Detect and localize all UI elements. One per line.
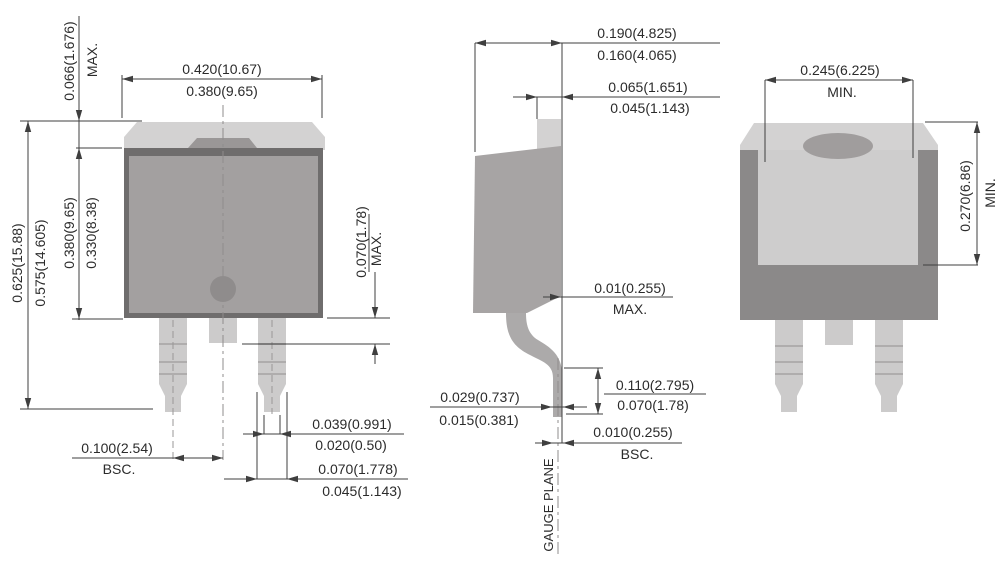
dim-front-center-lead-label: 0.070(1.78) bbox=[353, 206, 369, 278]
arrowhead bbox=[542, 440, 553, 446]
dim-side-lead-thickness-max-label: 0.029(0.737) bbox=[440, 389, 519, 405]
side-view: 0.190(4.825) 0.160(4.065) 0.065(1.651) 0… bbox=[430, 25, 720, 557]
arrowhead bbox=[372, 307, 378, 318]
dim-front-center-lead-qualifier: MAX. bbox=[368, 232, 384, 266]
arrowhead bbox=[563, 404, 574, 410]
arrowhead bbox=[246, 476, 257, 482]
arrowhead bbox=[173, 455, 184, 461]
back-lead-left bbox=[775, 320, 803, 412]
back-lead-center-stub bbox=[825, 320, 853, 345]
arrowhead bbox=[974, 122, 980, 133]
dim-side-lead-height-min-label: 0.070(1.78) bbox=[617, 397, 689, 413]
back-lead-right-tip bbox=[881, 396, 897, 412]
dim-front-tip-width-max-label: 0.039(0.991) bbox=[312, 416, 391, 432]
arrowhead bbox=[551, 40, 562, 46]
dim-side-lead-thickness-min-label: 0.015(0.381) bbox=[439, 412, 518, 428]
back-lead-left-taper bbox=[775, 384, 803, 396]
arrowhead bbox=[541, 404, 552, 410]
dim-side-tab-thickness-max-label: 0.065(1.651) bbox=[608, 79, 687, 95]
dim-side-tab-thickness-min-label: 0.045(1.143) bbox=[610, 100, 689, 116]
back-exposed-pad bbox=[758, 150, 918, 265]
dim-side-gauge-offset-qualifier: BSC. bbox=[621, 446, 654, 462]
dim-back-pad-width-label: 0.245(6.225) bbox=[800, 62, 879, 78]
dim-front-lead-width-max-label: 0.070(1.778) bbox=[318, 461, 397, 477]
dim-front-pitch-label: 0.100(2.54) bbox=[81, 440, 153, 456]
dim-side-body-setback-qualifier: MAX. bbox=[613, 301, 647, 317]
package-outline-drawing: 0.420(10.67) 0.380(9.65) 0.066(1.676) MA… bbox=[0, 0, 1000, 568]
arrowhead bbox=[25, 398, 31, 409]
back-lead-right bbox=[875, 320, 903, 412]
dim-back-pad-height-qualifier: MIN. bbox=[982, 178, 998, 208]
dim-side-depth-min-label: 0.160(4.065) bbox=[597, 47, 676, 63]
dim-front-tip-width-min-label: 0.020(0.50) bbox=[315, 437, 387, 453]
dim-side-gauge-offset-label: 0.010(0.255) bbox=[593, 424, 672, 440]
side-body bbox=[473, 146, 561, 313]
arrowhead bbox=[76, 148, 82, 159]
dim-front-tab-height-label: 0.066(1.676) bbox=[61, 21, 77, 100]
dim-front-total-height-max-label: 0.625(15.88) bbox=[9, 223, 25, 302]
arrowhead bbox=[25, 121, 31, 132]
arrowhead bbox=[526, 94, 537, 100]
arrowhead bbox=[974, 254, 980, 265]
arrowhead bbox=[595, 368, 601, 379]
dim-front-body-height-max-label: 0.380(9.65) bbox=[61, 197, 77, 269]
dim-front-tab-height-qualifier: MAX. bbox=[84, 43, 100, 77]
dim-side-depth-max-label: 0.190(4.825) bbox=[597, 25, 676, 41]
arrowhead bbox=[475, 40, 486, 46]
dim-front-body-height-min-label: 0.330(8.38) bbox=[83, 197, 99, 269]
dim-front-width-max-label: 0.420(10.67) bbox=[182, 61, 261, 77]
back-lead-right-taper bbox=[875, 384, 903, 396]
arrowhead bbox=[287, 476, 298, 482]
arrowhead bbox=[76, 308, 82, 319]
arrowhead bbox=[212, 455, 223, 461]
dim-front-lead-width-min-label: 0.045(1.143) bbox=[322, 483, 401, 499]
arrowhead bbox=[253, 431, 264, 437]
arrowhead bbox=[563, 440, 574, 446]
arrowhead bbox=[902, 77, 913, 83]
dim-side-body-setback-label: 0.01(0.255) bbox=[594, 280, 666, 296]
arrowhead bbox=[765, 77, 776, 83]
arrowhead bbox=[595, 403, 601, 414]
arrowhead bbox=[76, 110, 82, 121]
arrowhead bbox=[280, 431, 291, 437]
back-lead-left-tip bbox=[781, 396, 797, 412]
drawing-svg: 0.420(10.67) 0.380(9.65) 0.066(1.676) MA… bbox=[0, 0, 1000, 568]
dim-back-pad-height-label: 0.270(6.86) bbox=[957, 160, 973, 232]
dim-back-pad-width-qualifier: MIN. bbox=[827, 84, 857, 100]
dim-front-pitch-qualifier: BSC. bbox=[103, 461, 136, 477]
back-tab-hole bbox=[803, 133, 873, 159]
arrowhead bbox=[122, 76, 133, 82]
arrowhead bbox=[562, 94, 573, 100]
dim-front-width-min-label: 0.380(9.65) bbox=[186, 83, 258, 99]
gauge-plane-label: GAUGE PLANE bbox=[541, 458, 556, 552]
arrowhead bbox=[372, 344, 378, 355]
arrowhead bbox=[311, 76, 322, 82]
dim-side-lead-height-max-label: 0.110(2.795) bbox=[616, 377, 694, 393]
side-tab bbox=[537, 119, 561, 149]
front-view: 0.420(10.67) 0.380(9.65) 0.066(1.676) MA… bbox=[9, 16, 408, 499]
dim-front-total-height-min-label: 0.575(14.605) bbox=[32, 219, 48, 306]
back-view: 0.245(6.225) MIN. 0.270(6.86) MIN. bbox=[740, 62, 998, 412]
